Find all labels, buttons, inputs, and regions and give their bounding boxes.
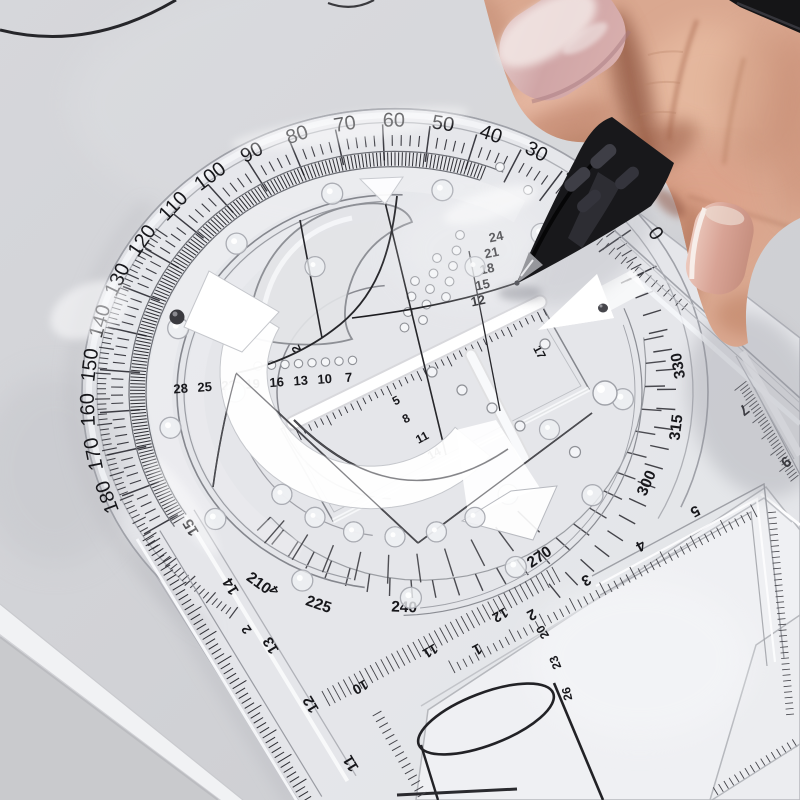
svg-text:13: 13 bbox=[293, 373, 308, 389]
svg-text:16: 16 bbox=[269, 374, 284, 390]
svg-text:10: 10 bbox=[317, 371, 332, 387]
svg-text:160: 160 bbox=[77, 393, 100, 427]
svg-text:28: 28 bbox=[173, 381, 188, 397]
svg-text:315: 315 bbox=[667, 413, 687, 441]
svg-text:7: 7 bbox=[345, 370, 353, 385]
svg-text:150: 150 bbox=[77, 347, 103, 383]
svg-text:25: 25 bbox=[197, 379, 212, 395]
